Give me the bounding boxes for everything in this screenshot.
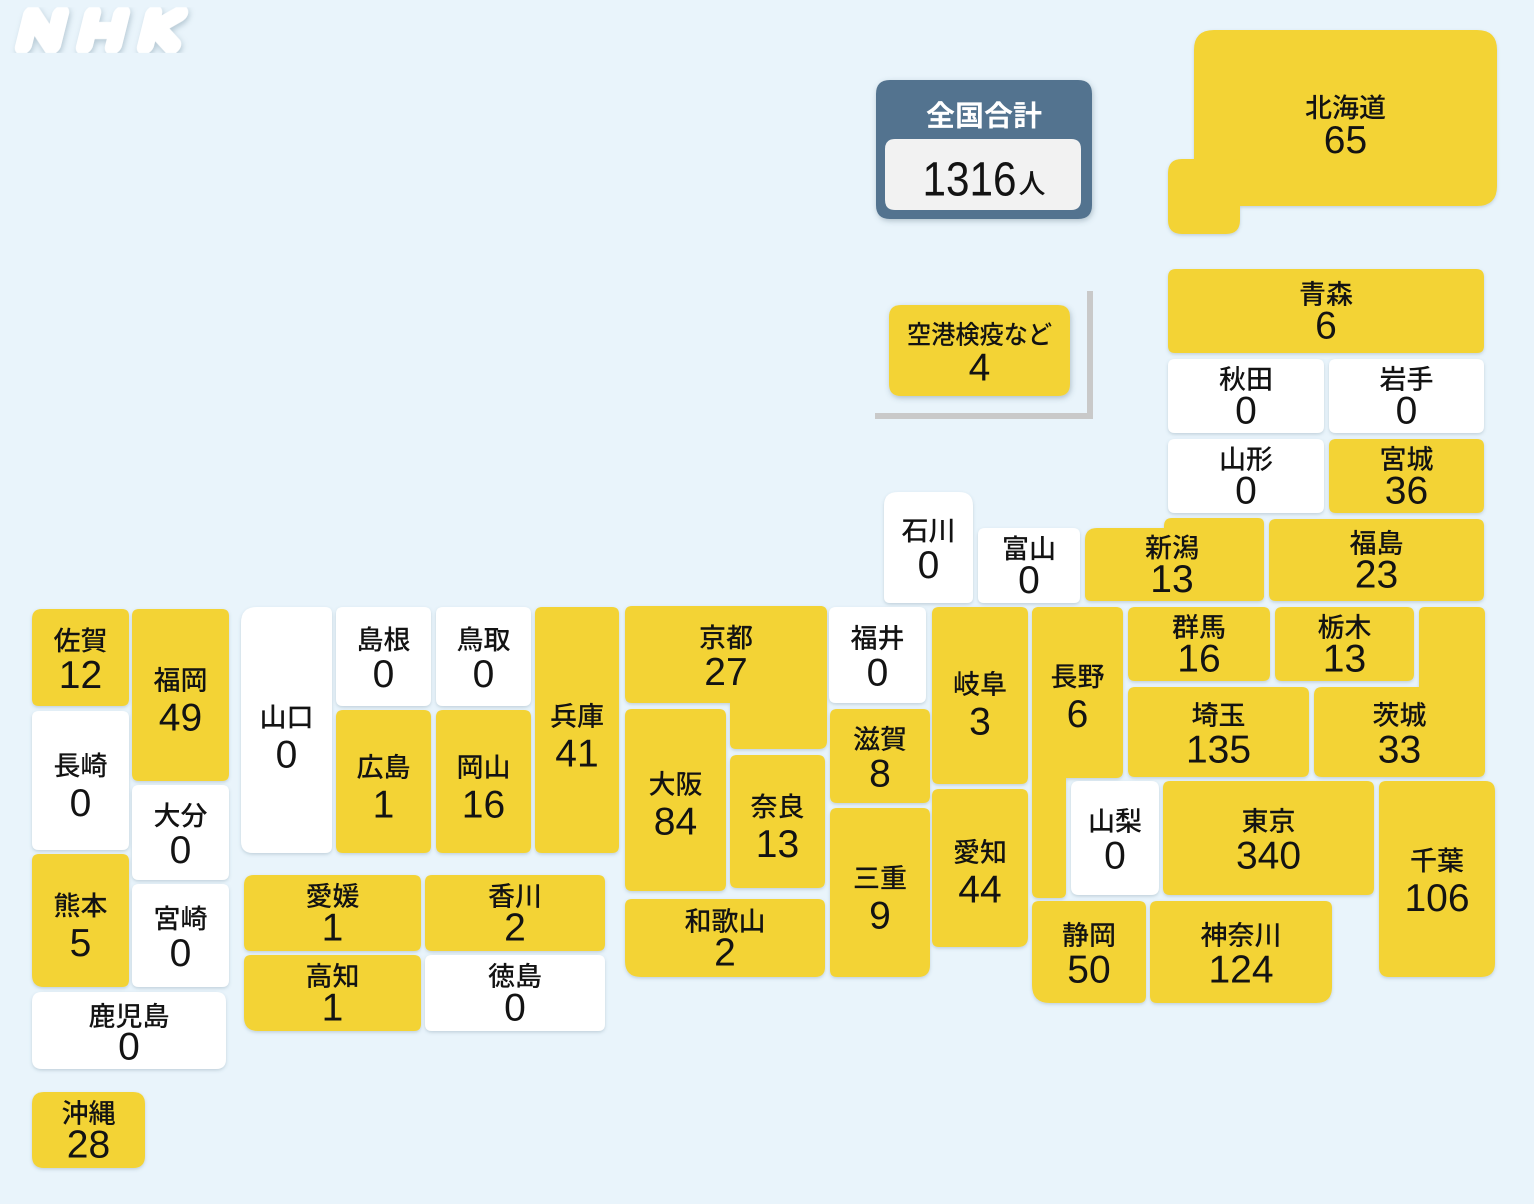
svg-text:16: 16: [1177, 638, 1220, 681]
svg-text:0: 0: [1396, 390, 1418, 433]
svg-text:5: 5: [70, 922, 92, 965]
svg-text:3: 3: [969, 701, 991, 744]
svg-text:65: 65: [1324, 119, 1367, 162]
svg-text:9: 9: [869, 895, 891, 938]
svg-text:0: 0: [170, 932, 192, 975]
svg-text:0: 0: [276, 734, 298, 777]
svg-text:2: 2: [504, 907, 526, 950]
svg-text:6: 6: [1315, 305, 1337, 348]
svg-text:41: 41: [555, 733, 598, 776]
svg-text:6: 6: [1067, 693, 1089, 736]
svg-text:1: 1: [322, 987, 344, 1030]
svg-text:0: 0: [504, 987, 526, 1030]
svg-text:0: 0: [1018, 559, 1040, 602]
svg-text:0: 0: [918, 544, 940, 587]
svg-text:27: 27: [704, 651, 747, 694]
svg-text:50: 50: [1067, 949, 1110, 992]
svg-text:13: 13: [1150, 558, 1193, 601]
svg-text:44: 44: [958, 869, 1001, 912]
svg-text:4: 4: [969, 347, 991, 390]
svg-text:1: 1: [322, 907, 344, 950]
svg-text:36: 36: [1385, 470, 1428, 513]
svg-text:49: 49: [159, 697, 202, 740]
svg-text:1: 1: [373, 784, 395, 827]
svg-text:2: 2: [714, 932, 736, 975]
svg-text:28: 28: [67, 1124, 110, 1167]
svg-text:135: 135: [1186, 729, 1251, 772]
svg-text:0: 0: [170, 829, 192, 872]
svg-text:23: 23: [1355, 554, 1398, 597]
svg-text:13: 13: [1323, 638, 1366, 681]
svg-text:0: 0: [1104, 835, 1126, 878]
svg-text:16: 16: [462, 784, 505, 827]
svg-text:340: 340: [1236, 835, 1301, 878]
svg-text:0: 0: [1235, 390, 1257, 433]
svg-text:124: 124: [1208, 949, 1273, 992]
svg-text:1316: 1316: [923, 154, 1017, 207]
svg-text:84: 84: [654, 801, 697, 844]
svg-text:12: 12: [59, 654, 102, 697]
svg-text:0: 0: [867, 652, 889, 695]
svg-text:0: 0: [473, 653, 495, 696]
svg-text:0: 0: [373, 653, 395, 696]
svg-text:0: 0: [1235, 470, 1257, 513]
svg-text:0: 0: [118, 1026, 140, 1069]
svg-text:106: 106: [1404, 877, 1469, 920]
svg-text:33: 33: [1378, 729, 1421, 772]
svg-text:13: 13: [756, 823, 799, 866]
svg-text:8: 8: [869, 753, 891, 796]
svg-text:0: 0: [70, 782, 92, 825]
